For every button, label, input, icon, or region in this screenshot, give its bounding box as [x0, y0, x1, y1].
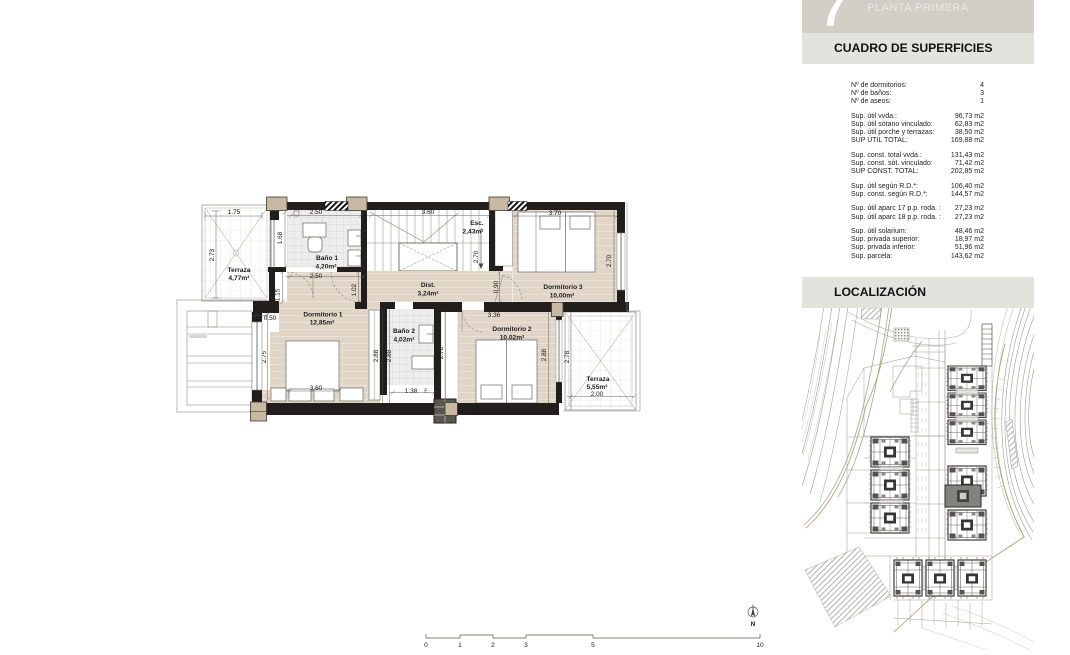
svg-text:1.15: 1.15: [275, 288, 282, 301]
svg-text:Dormitorio 1: Dormitorio 1: [303, 312, 343, 319]
svg-text:5,55m²: 5,55m²: [587, 384, 609, 391]
svg-text:2.88: 2.88: [541, 348, 548, 361]
svg-text:1.68: 1.68: [277, 231, 284, 244]
svg-text:2.00: 2.00: [591, 391, 604, 398]
svg-text:2.78: 2.78: [564, 350, 571, 363]
svg-text:Baño 1: Baño 1: [316, 255, 338, 262]
svg-text:2: 2: [491, 642, 495, 649]
svg-text:Esc.: Esc.: [470, 220, 484, 227]
svg-text:2.70: 2.70: [473, 250, 480, 263]
svg-text:Dormitorio 3: Dormitorio 3: [543, 284, 583, 291]
svg-text:3.36: 3.36: [488, 312, 501, 319]
svg-text:1.38: 1.38: [405, 388, 418, 395]
svg-text:Dormitorio 2: Dormitorio 2: [492, 326, 532, 333]
svg-text:3.60: 3.60: [422, 209, 435, 216]
svg-text:1: 1: [458, 642, 462, 649]
svg-text:2.73: 2.73: [209, 248, 216, 261]
svg-text:2.50: 2.50: [310, 209, 323, 216]
svg-text:5: 5: [591, 642, 595, 649]
svg-text:2.70: 2.70: [606, 254, 613, 267]
svg-text:12,85m²: 12,85m²: [310, 320, 335, 327]
svg-text:4,20m²: 4,20m²: [316, 264, 338, 271]
svg-text:Terraza: Terraza: [587, 376, 610, 383]
svg-text:0: 0: [424, 642, 428, 649]
svg-text:4,02m²: 4,02m²: [394, 337, 416, 344]
svg-text:10: 10: [756, 642, 764, 649]
svg-text:2,43m²: 2,43m²: [463, 229, 485, 236]
svg-text:4,77m²: 4,77m²: [229, 275, 251, 282]
svg-text:1.02: 1.02: [351, 283, 358, 296]
svg-text:3,24m²: 3,24m²: [418, 291, 440, 298]
svg-text:N: N: [751, 621, 756, 628]
svg-text:Baño 2: Baño 2: [393, 328, 415, 335]
svg-text:0.90: 0.90: [493, 280, 500, 293]
svg-text:2.88: 2.88: [373, 349, 380, 362]
svg-text:10,00m²: 10,00m²: [550, 293, 575, 300]
svg-text:Terraza: Terraza: [228, 267, 251, 274]
svg-text:1.75: 1.75: [228, 209, 241, 216]
svg-text:Dist.: Dist.: [421, 282, 435, 289]
svg-text:3: 3: [524, 642, 528, 649]
svg-text:0.50: 0.50: [264, 315, 277, 322]
